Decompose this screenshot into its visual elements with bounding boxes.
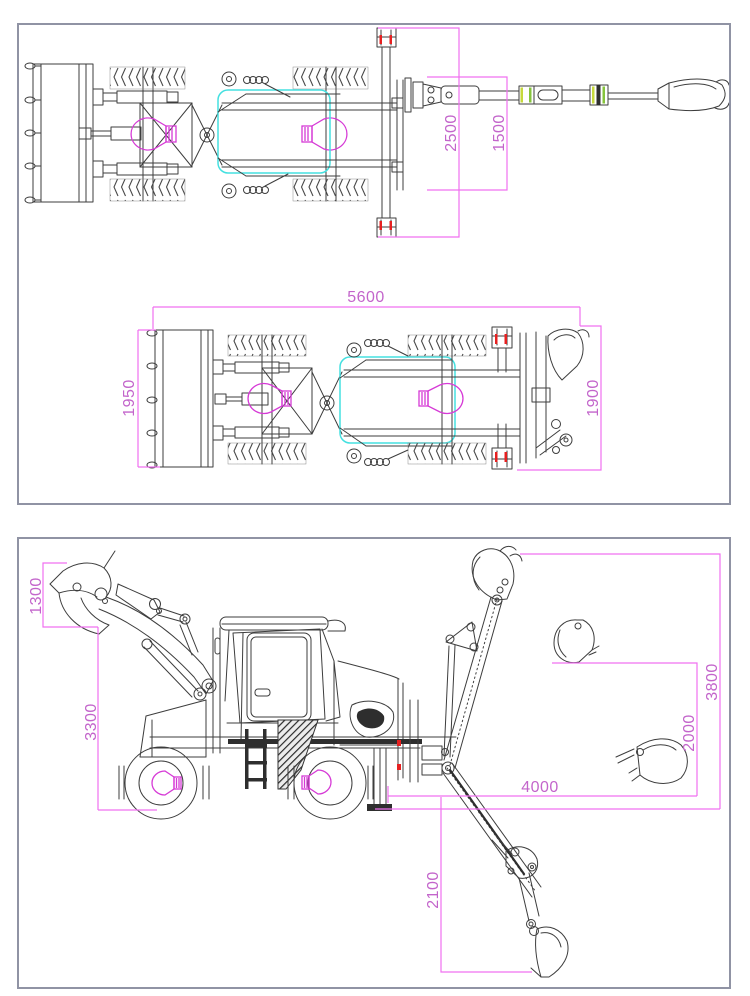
dim-label-1300: 1300 [28, 577, 45, 615]
rear-axle-housing [302, 118, 347, 150]
dim-label-2000: 2000 [681, 714, 698, 752]
rear-axle-housing-2 [419, 384, 463, 414]
dimension-5600: 5600 [153, 289, 580, 329]
dimension-4000: 4000 [388, 779, 697, 803]
bucket-ghost-mid [554, 620, 599, 663]
dimension-1950: 1950 [121, 330, 160, 467]
plan-extended-view: 2500 1500 [25, 28, 729, 237]
dim-label-5600: 5600 [347, 289, 385, 306]
dimension-1500: 1500 [427, 77, 508, 190]
door-handle [255, 689, 270, 696]
chassis [140, 700, 456, 789]
ladder [245, 729, 267, 789]
body-highlight-box [218, 90, 330, 173]
dim-label-4000: 4000 [521, 779, 559, 796]
stabilizers-extended [377, 28, 403, 237]
backhoe-folded [532, 329, 589, 458]
front-blade-2 [147, 330, 213, 468]
plan-views-svg: 2500 1500 [19, 25, 729, 503]
stabilizer-leg [374, 748, 386, 805]
hose-coils-2 [347, 340, 408, 466]
rear-wheel [294, 747, 366, 819]
front-axle-housing-2 [248, 384, 291, 414]
front-tires [110, 67, 185, 201]
cab-window [247, 633, 311, 721]
hose-coils [222, 72, 290, 198]
dim-label-1500: 1500 [491, 114, 508, 152]
side-view-svg: 1300 3300 3800 2000 4000 2100 [19, 539, 729, 987]
dim-label-3300: 3300 [83, 703, 100, 741]
bucket-ghost-reach [616, 739, 687, 784]
front-frame-2 [262, 368, 312, 434]
dim-label-1950: 1950 [121, 379, 138, 417]
backhoe-bucket-raised [472, 549, 514, 600]
rear-tires-2 [408, 335, 486, 464]
plan-views-panel: 2500 1500 [17, 23, 731, 505]
dimension-2000: 2000 [552, 663, 698, 796]
rear-body [218, 80, 403, 190]
backhoe-bucket-plan [658, 79, 729, 110]
dim-label-2100: 2100 [425, 871, 442, 909]
engine-hood [334, 661, 403, 780]
backhoe-arm-extended [405, 78, 729, 112]
articulation-joint-2 [312, 372, 342, 434]
cad-drawing-page: { "colors": { "dimension_line": "#f070f0… [0, 0, 750, 996]
backhoe-raised [444, 546, 522, 768]
plan-transport-view: 5600 1950 1900 [121, 289, 602, 470]
front-blade [25, 63, 93, 203]
dimension-3800: 3800 [375, 554, 721, 809]
loader-boom [99, 584, 216, 700]
dim-label-2500: 2500 [443, 114, 460, 152]
stabilizers-folded [492, 327, 512, 469]
front-tires-2 [228, 335, 306, 464]
side-view-panel: 1300 3300 3800 2000 4000 2100 [17, 537, 731, 989]
loader-arms [79, 89, 178, 177]
loader-arms-2 [213, 360, 289, 440]
step-plate [278, 720, 318, 789]
dimension-1300: 1300 [28, 563, 98, 627]
front-wheel [125, 747, 197, 819]
front-axle-housing [131, 118, 176, 150]
dim-label-3800: 3800 [704, 663, 721, 701]
dim-label-1900: 1900 [585, 379, 602, 417]
stabilizer-foot [367, 804, 392, 811]
